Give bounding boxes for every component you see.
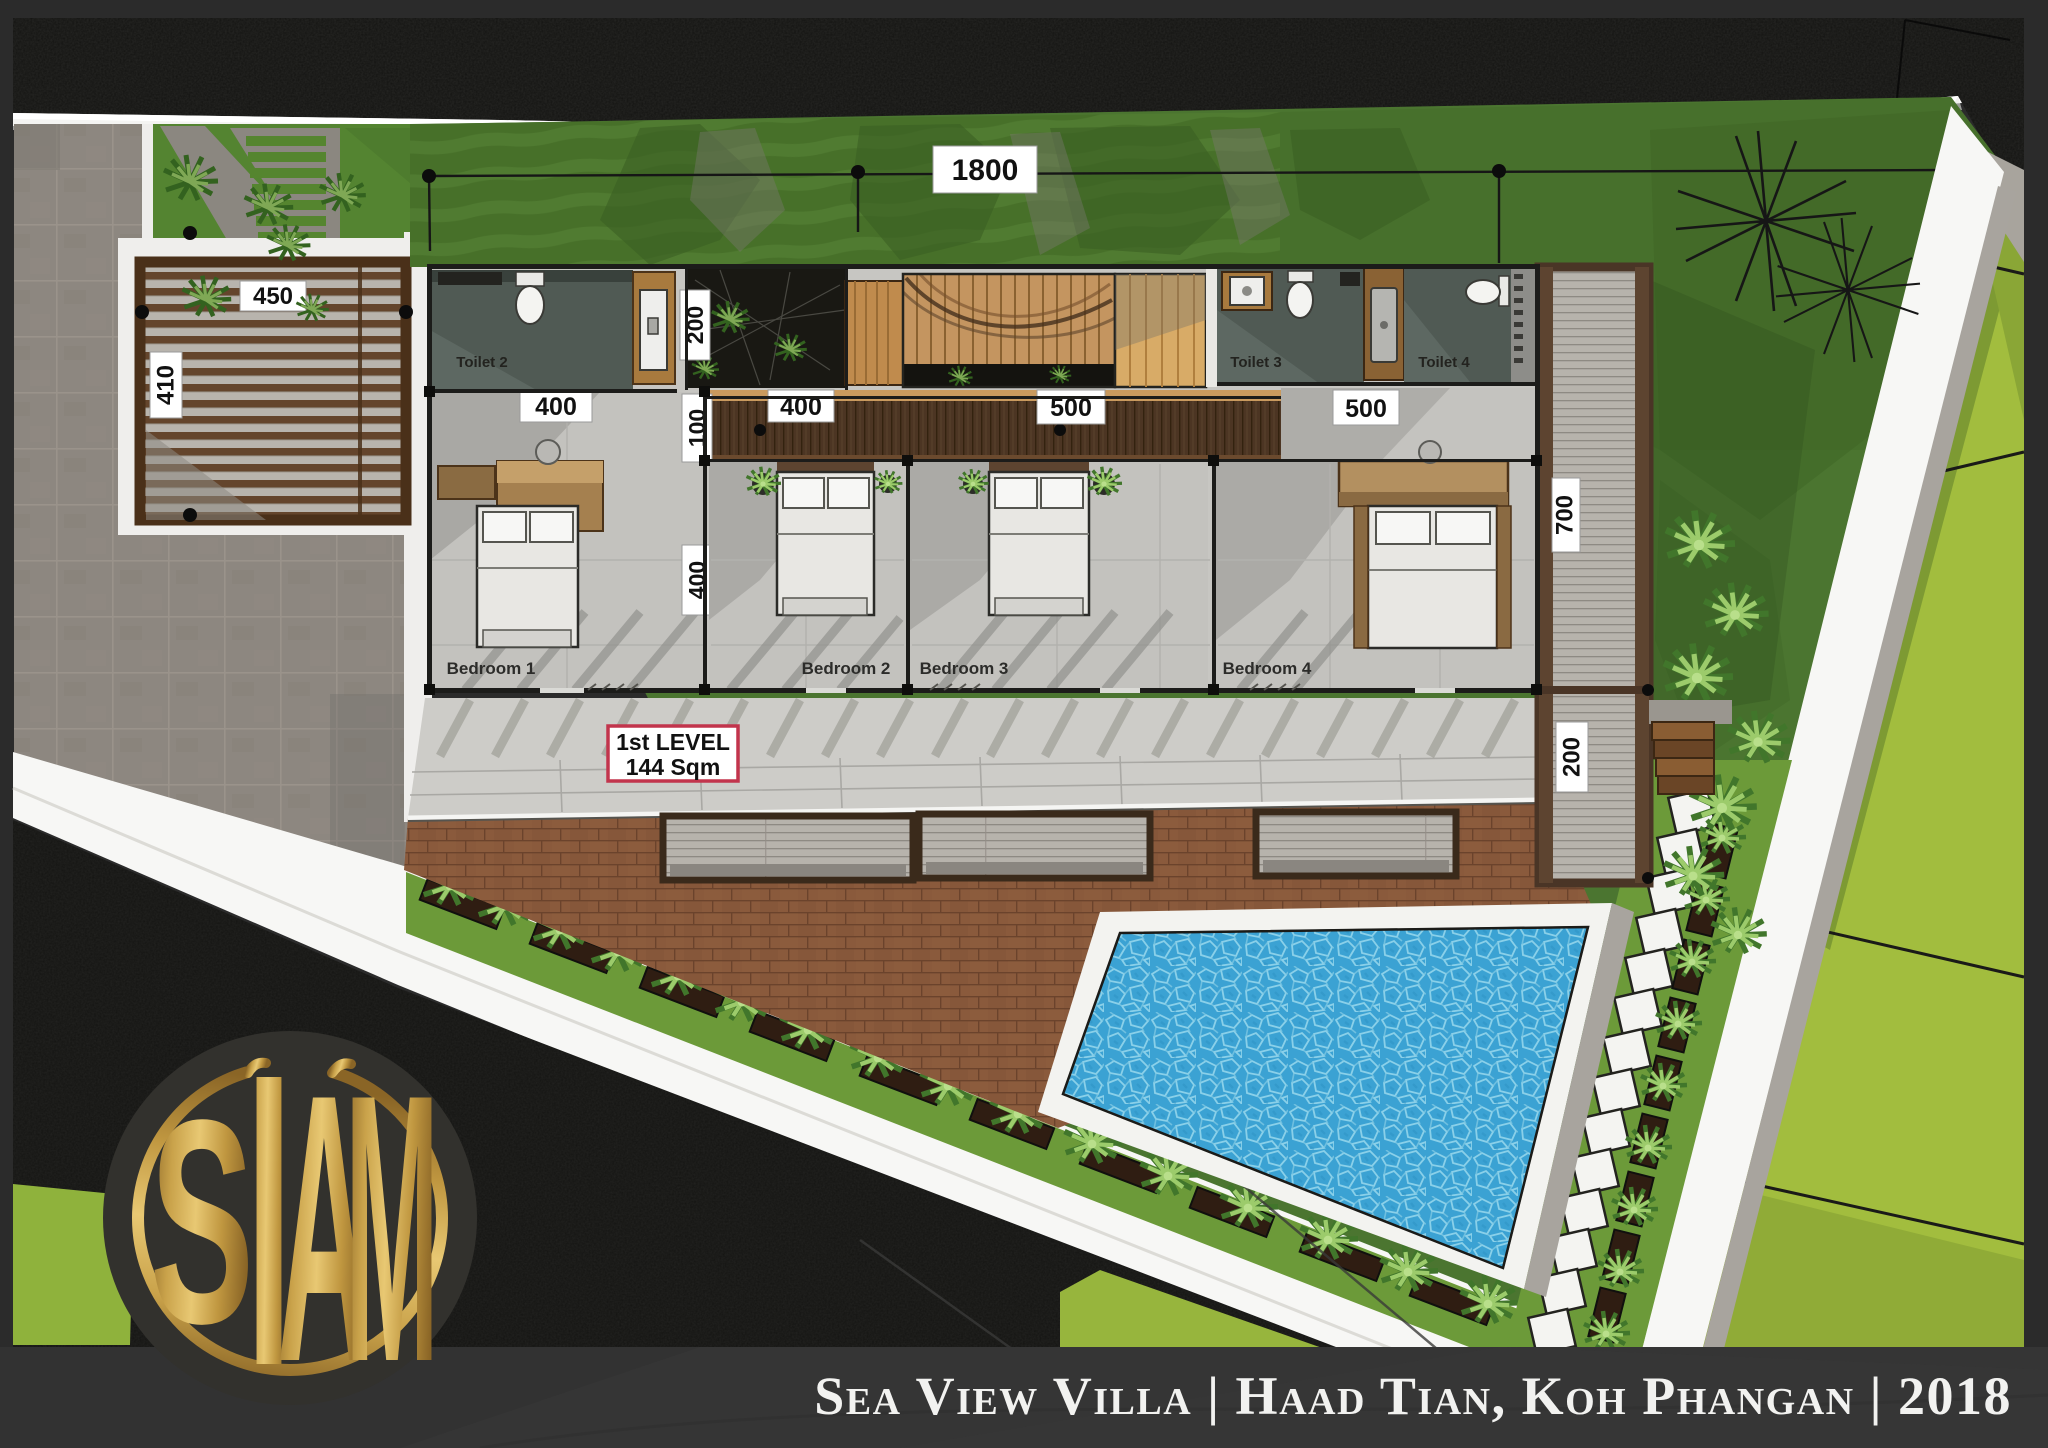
svg-text:144 Sqm: 144 Sqm: [626, 754, 721, 780]
svg-text:Bedroom 3: Bedroom 3: [920, 659, 1009, 678]
svg-text:Bedroom 4: Bedroom 4: [1223, 659, 1312, 678]
svg-text:M: M: [345, 1017, 439, 1442]
svg-text:400: 400: [535, 393, 577, 421]
svg-text:700: 700: [1552, 495, 1579, 535]
svg-text:S: S: [150, 1059, 254, 1383]
svg-text:Toilet 2: Toilet 2: [456, 354, 507, 371]
svg-text:Toilet 4: Toilet 4: [1418, 354, 1470, 371]
svg-text:410: 410: [153, 365, 180, 405]
svg-text:Sea View Villa | Haad Tian, Ko: Sea View Villa | Haad Tian, Koh Phangan …: [814, 1366, 2012, 1426]
svg-text:Bedroom 2: Bedroom 2: [802, 659, 891, 678]
svg-text:1800: 1800: [952, 154, 1019, 187]
svg-text:Toilet 3: Toilet 3: [1230, 354, 1281, 371]
svg-text:Bedroom 1: Bedroom 1: [447, 659, 536, 678]
svg-text:450: 450: [253, 283, 293, 310]
svg-text:500: 500: [1345, 395, 1387, 423]
svg-text:200: 200: [1559, 737, 1586, 777]
svg-text:1st LEVEL: 1st LEVEL: [616, 729, 730, 755]
